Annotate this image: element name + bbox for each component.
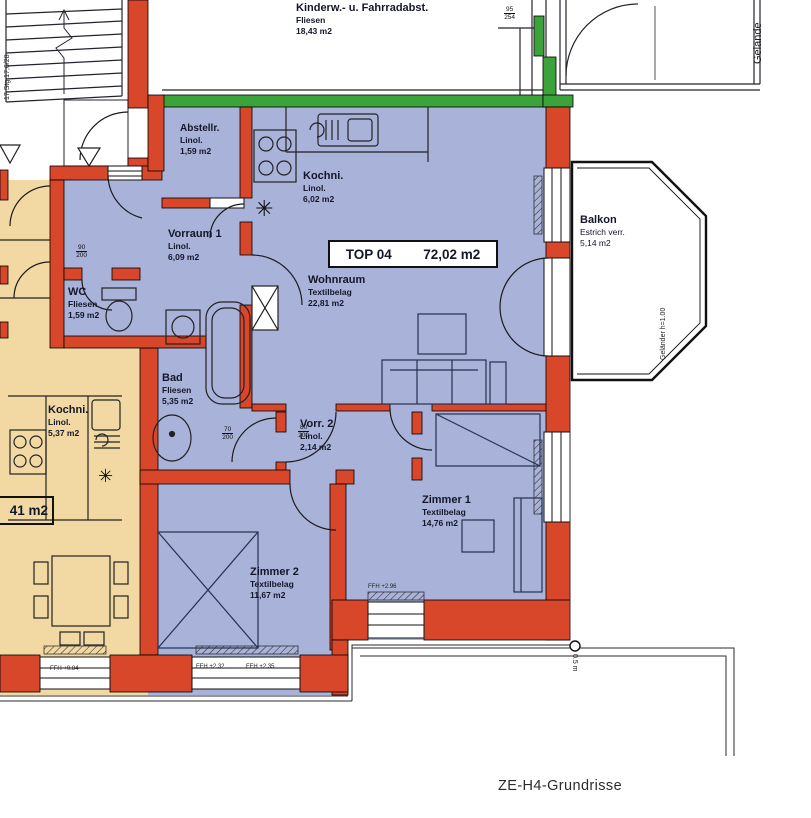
room-label-zimmer1: Zimmer 1 Textilbelag 14,76 m2 [422, 494, 471, 529]
room-area: 18,43 m2 [296, 26, 428, 37]
room-label-wc: WC Fliesen 1,59 m2 [68, 286, 99, 321]
room-area: 5,37 m2 [48, 428, 88, 439]
room-floor: Linol. [303, 183, 343, 194]
abstellraum-door-gap [210, 198, 244, 208]
window [40, 657, 110, 689]
radiator-icon [196, 646, 298, 654]
shaft-triangle-icon [0, 145, 20, 163]
marker-annotation: 0.5 m [571, 654, 578, 672]
door-arc [566, 4, 638, 76]
neighbor-area: 41 m2 [10, 503, 48, 518]
unit-id: TOP 04 [346, 247, 392, 262]
room-floor: Textilbelag [422, 507, 471, 518]
room-name: Zimmer 2 [250, 566, 299, 579]
dimension-width: 95 [504, 6, 515, 14]
window [192, 657, 300, 689]
ffh-annotation: FFH +2.35 [246, 664, 275, 670]
radiator-icon [44, 646, 106, 654]
room-area: 6,02 m2 [303, 194, 343, 205]
railing-annotation: Geländer h=1.00 [660, 308, 667, 360]
room-label-zimmer2: Zimmer 2 Textilbelag 11,67 m2 [250, 566, 299, 601]
dimension-height: 200 [298, 432, 309, 439]
room-area: 5,14 m2 [580, 238, 625, 249]
dimension-height: 200 [76, 252, 87, 259]
room-area: 14,76 m2 [422, 518, 471, 529]
radiator-icon [534, 440, 542, 514]
shaft-icon [252, 286, 278, 330]
room-label-kinderwagen: Kinderw.- u. Fahrradabst. Fliesen 18,43 … [296, 2, 428, 37]
marker-circle [570, 641, 580, 651]
radiator-icon [534, 176, 542, 234]
room-name: Zimmer 1 [422, 494, 471, 507]
dimension-height: 254 [504, 14, 515, 21]
unit-area: 72,02 m2 [423, 247, 480, 262]
room-name: Abstellr. [180, 122, 219, 135]
room-floor: Fliesen [162, 385, 193, 396]
room-label-vorraum1: Vorraum 1 Linol. 6,09 m2 [168, 228, 222, 263]
stairs-icon [6, 0, 122, 102]
room-name: Vorraum 1 [168, 228, 222, 241]
room-name: Bad [162, 372, 193, 385]
room-label-kueche-nachbar: Kochni. Linol. 5,37 m2 [48, 404, 88, 439]
dimension-width: 90 [76, 244, 87, 252]
top-right-room-outline [560, 0, 760, 90]
window [368, 602, 424, 638]
room-name: Kochni. [303, 170, 343, 183]
dimension-window: 95 254 [504, 6, 515, 21]
ffh-annotation: FFH +2.96 [368, 584, 397, 590]
room-name: Kochni. [48, 404, 88, 417]
window [544, 168, 570, 242]
room-name: WC [68, 286, 99, 299]
ffh-annotation: FFH +0.84 [50, 666, 79, 672]
dimension-width: 80 [298, 424, 309, 432]
room-label-bad: Bad Fliesen 5,35 m2 [162, 372, 193, 407]
neighbor-area-box: 41 m2 [0, 496, 54, 525]
room-area: 22,81 m2 [308, 298, 365, 309]
room-label-balkon: Balkon Estrich verr. 5,14 m2 [580, 214, 625, 249]
room-area: 11,67 m2 [250, 590, 299, 601]
room-area: 1,59 m2 [180, 146, 219, 157]
room-floor: Estrich verr. [580, 227, 625, 238]
room-floor: Textilbelag [250, 579, 299, 590]
room-name: Wohnraum [308, 274, 365, 287]
room-area: 6,09 m2 [168, 252, 222, 263]
room-floor: Textilbelag [308, 287, 365, 298]
entry-door-gap [108, 166, 142, 180]
dimension-door-bad: 70 200 [222, 426, 233, 441]
unit-area-box: TOP 04 72,02 m2 [328, 240, 498, 268]
room-floor: Fliesen [68, 299, 99, 310]
stairs-annotation: 17 Stg 17,6/28 [4, 54, 11, 100]
radiator-icon [368, 592, 424, 600]
room-label-kueche: Kochni. Linol. 6,02 m2 [303, 170, 343, 205]
room-name: Kinderw.- u. Fahrradabst. [296, 2, 428, 15]
balcony-door [544, 258, 570, 356]
room-area: 5,35 m2 [162, 396, 193, 407]
room-label-wohnraum: Wohnraum Textilbelag 22,81 m2 [308, 274, 365, 309]
room-area: 1,59 m2 [68, 310, 99, 321]
floorplan-page: ✳ ✳ [0, 0, 811, 818]
dimension-door-vorr2: 80 200 [298, 424, 309, 439]
stair-landing [64, 100, 128, 166]
drawing-title: ZE-H4-Grundrisse [498, 778, 622, 794]
dimension-width: 70 [222, 426, 233, 434]
ffh-annotation: FFH +2.32 [196, 664, 225, 670]
room-floor: Linol. [180, 135, 219, 146]
site-label: Gelände [752, 22, 764, 64]
balcony-outline [572, 162, 706, 380]
dimension-height: 200 [222, 434, 233, 441]
snowflake-icon: ✳ [98, 466, 113, 486]
window [544, 432, 570, 522]
room-name: Balkon [580, 214, 625, 227]
dimension-door-wc: 90 200 [76, 244, 87, 259]
snowflake-icon: ✳ [255, 196, 273, 221]
room-floor: Linol. [168, 241, 222, 252]
room-floor: Linol. [48, 417, 88, 428]
room-label-abstellraum: Abstellr. Linol. 1,59 m2 [180, 122, 219, 157]
room-floor: Fliesen [296, 15, 428, 26]
floorplan-drawing: ✳ ✳ [0, 0, 811, 818]
room-area: 2,14 m2 [300, 442, 333, 453]
